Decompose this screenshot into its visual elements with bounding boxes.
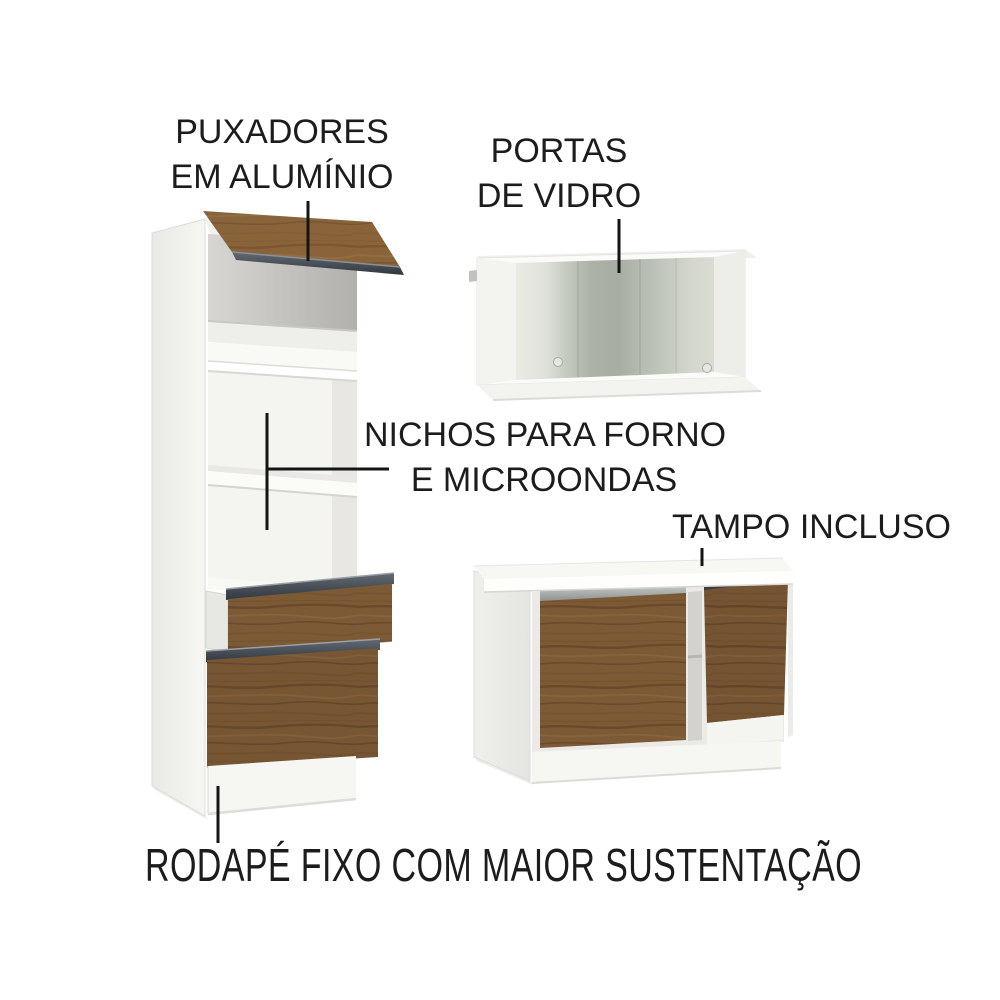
label-countertop-included-text: TAMPO INCLUSO — [672, 505, 951, 550]
glass-door-knob-right — [703, 364, 712, 373]
label-aluminum-handles: PUXADORES EM ALUMÍNIO — [122, 110, 442, 200]
label-fixed-baseboard-text: RODAPÉ FIXO COM MAIOR SUSTENTAÇÃO — [145, 841, 862, 889]
base-cabinet-right-edge — [788, 571, 793, 737]
tall-cabinet — [152, 211, 404, 820]
wall-cabinet-side-handle — [469, 270, 477, 282]
wall-cabinet-right-panel — [714, 251, 745, 377]
label-glass-doors-line1: PORTAS — [429, 129, 689, 174]
label-countertop-included: TAMPO INCLUSO — [672, 505, 951, 550]
glass-door-knob-left — [554, 358, 563, 367]
wall-cabinet-left-frame — [477, 258, 516, 385]
base-cabinet — [474, 558, 793, 785]
base-cabinet-mid-interior — [688, 591, 702, 741]
base-door-left — [540, 593, 686, 748]
product-annotation-image: PUXADORES EM ALUMÍNIO PORTAS DE VIDRO NI… — [0, 0, 1000, 1000]
label-aluminum-handles-line1: PUXADORES — [122, 110, 442, 155]
label-oven-microwave-niches: NICHOS PARA FORNO E MICROONDAS — [364, 413, 724, 503]
glass-doors — [516, 257, 714, 380]
wall-cabinet — [469, 249, 761, 400]
label-glass-doors: PORTAS DE VIDRO — [429, 129, 689, 219]
label-oven-microwave-niches-line1: NICHOS PARA FORNO — [364, 413, 724, 458]
label-glass-doors-line2: DE VIDRO — [429, 174, 689, 219]
label-aluminum-handles-line2: EM ALUMÍNIO — [122, 155, 442, 200]
label-fixed-baseboard: RODAPÉ FIXO COM MAIOR SUSTENTAÇÃO — [145, 841, 862, 889]
base-cabinet-left-side — [474, 571, 530, 781]
small-drawer-box-side — [206, 591, 228, 652]
tall-cabinet-left-side — [152, 219, 205, 816]
label-oven-microwave-niches-line2: E MICROONDAS — [364, 458, 724, 503]
